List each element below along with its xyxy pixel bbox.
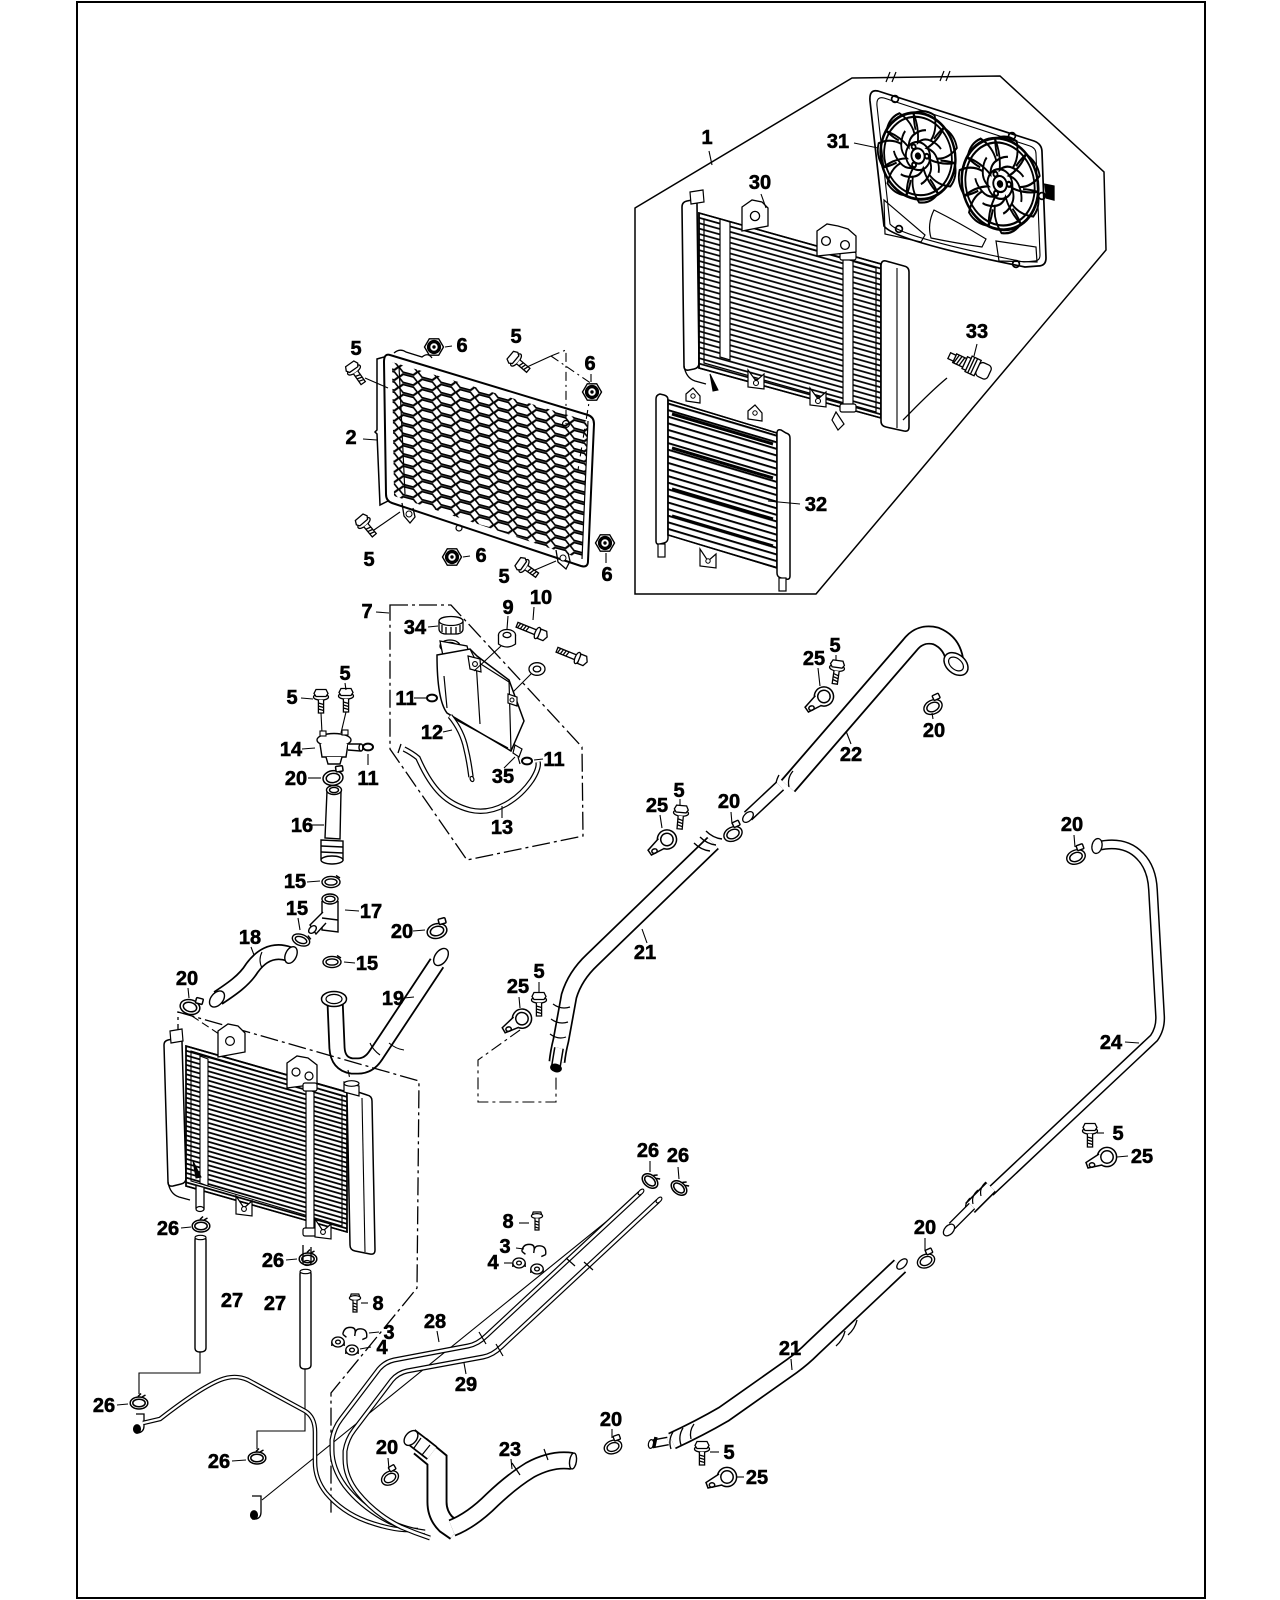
svg-text:6: 6	[601, 564, 612, 586]
svg-text:5: 5	[723, 1442, 734, 1464]
svg-text:5: 5	[286, 687, 297, 709]
svg-text:35: 35	[492, 766, 514, 788]
svg-text:20: 20	[923, 720, 945, 742]
svg-text:11: 11	[395, 688, 416, 710]
svg-text:5: 5	[510, 326, 521, 348]
svg-text:31: 31	[827, 131, 849, 153]
svg-text:18: 18	[239, 927, 261, 949]
svg-text:2: 2	[345, 427, 356, 449]
svg-text:19: 19	[382, 988, 404, 1010]
svg-text:20: 20	[176, 968, 198, 990]
svg-text:5: 5	[533, 961, 544, 983]
svg-text:20: 20	[600, 1409, 622, 1431]
svg-text:4: 4	[487, 1252, 499, 1274]
svg-text:25: 25	[507, 976, 529, 998]
svg-text:30: 30	[749, 172, 771, 194]
svg-text:5: 5	[1112, 1123, 1123, 1145]
svg-text:24: 24	[1100, 1032, 1123, 1054]
svg-text:20: 20	[376, 1437, 398, 1459]
svg-text:25: 25	[746, 1467, 768, 1489]
svg-text:32: 32	[805, 494, 827, 516]
svg-text:5: 5	[673, 780, 684, 802]
svg-text:10: 10	[530, 587, 552, 609]
svg-text:23: 23	[499, 1439, 521, 1461]
svg-text:11: 11	[357, 768, 378, 790]
svg-text:26: 26	[262, 1250, 284, 1272]
svg-text:3: 3	[499, 1236, 510, 1258]
svg-text:16: 16	[291, 815, 313, 837]
svg-text:26: 26	[93, 1395, 115, 1417]
svg-text:15: 15	[284, 871, 306, 893]
svg-text:26: 26	[667, 1145, 689, 1167]
svg-text:5: 5	[363, 549, 374, 571]
svg-text:14: 14	[280, 739, 303, 761]
svg-text:7: 7	[361, 601, 372, 623]
svg-text:34: 34	[404, 617, 427, 639]
svg-text:21: 21	[779, 1338, 801, 1360]
svg-text:20: 20	[1061, 814, 1083, 836]
svg-text:27: 27	[221, 1290, 243, 1312]
svg-text:33: 33	[966, 321, 988, 343]
svg-text:8: 8	[372, 1293, 383, 1315]
svg-text:20: 20	[718, 791, 740, 813]
svg-text:26: 26	[637, 1140, 659, 1162]
svg-text:20: 20	[391, 921, 413, 943]
svg-text:13: 13	[491, 817, 513, 839]
svg-text:12: 12	[421, 722, 443, 744]
svg-text:15: 15	[356, 953, 378, 975]
svg-text:4: 4	[376, 1337, 388, 1359]
svg-text:29: 29	[455, 1374, 477, 1396]
svg-text:26: 26	[157, 1218, 179, 1240]
svg-text:22: 22	[840, 744, 862, 766]
svg-text:17: 17	[360, 901, 382, 923]
svg-text:6: 6	[584, 353, 595, 375]
svg-text:25: 25	[1131, 1146, 1153, 1168]
svg-text:5: 5	[350, 338, 361, 360]
svg-text:5: 5	[498, 566, 509, 588]
svg-text:20: 20	[914, 1217, 936, 1239]
svg-text:1: 1	[701, 127, 712, 149]
svg-text:5: 5	[339, 663, 350, 685]
svg-text:27: 27	[264, 1293, 286, 1315]
svg-text:25: 25	[803, 648, 825, 670]
svg-text:26: 26	[208, 1451, 230, 1473]
svg-text:5: 5	[829, 635, 840, 657]
svg-text:9: 9	[502, 597, 513, 619]
svg-text:20: 20	[285, 768, 307, 790]
svg-text:11: 11	[543, 749, 564, 771]
svg-text:28: 28	[424, 1311, 446, 1333]
svg-text:15: 15	[286, 898, 308, 920]
svg-text:6: 6	[475, 545, 486, 567]
svg-text:21: 21	[634, 942, 656, 964]
svg-text:25: 25	[646, 795, 668, 817]
svg-text:6: 6	[456, 335, 467, 357]
svg-text:8: 8	[502, 1211, 513, 1233]
